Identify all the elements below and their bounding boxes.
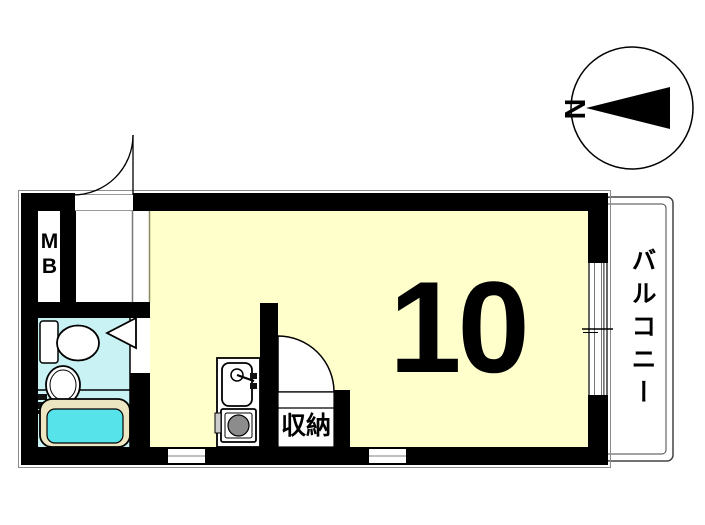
stove-burner-icon <box>228 415 249 436</box>
compass-north-label: N <box>556 91 590 127</box>
room-size-label: 10 <box>375 270 540 384</box>
storage-wall-right <box>334 390 350 447</box>
partition-wall <box>260 303 278 447</box>
stove-side-tab <box>215 413 221 433</box>
wall-right-upper <box>588 193 608 263</box>
bathtub-water <box>47 409 123 443</box>
bottom-vent-left <box>168 449 205 463</box>
bathroom-wall-right <box>130 373 150 447</box>
meter-box-wall <box>60 211 76 302</box>
wall-bottom <box>21 447 608 465</box>
toilet-bowl-icon <box>57 326 99 361</box>
entrance-doorway <box>75 195 133 211</box>
balcony-label: バルコニー <box>624 247 660 443</box>
wall-left <box>21 193 38 465</box>
bathroom-wall-top <box>21 302 150 318</box>
meter-box-label: MB <box>37 230 61 280</box>
washbasin-inner-ring <box>50 370 76 400</box>
storage-label: 収納 <box>277 409 335 443</box>
bottom-vent-right <box>369 449 406 463</box>
wall-top <box>133 193 608 211</box>
wall-right-lower <box>588 395 608 465</box>
floor-plan: 10 収納 バルコニー MB N <box>0 0 705 525</box>
entry-hall <box>75 211 150 302</box>
toilet-tank-icon <box>40 321 58 363</box>
entrance-door-icon <box>73 135 133 195</box>
floor-plan-drawing <box>0 0 705 525</box>
